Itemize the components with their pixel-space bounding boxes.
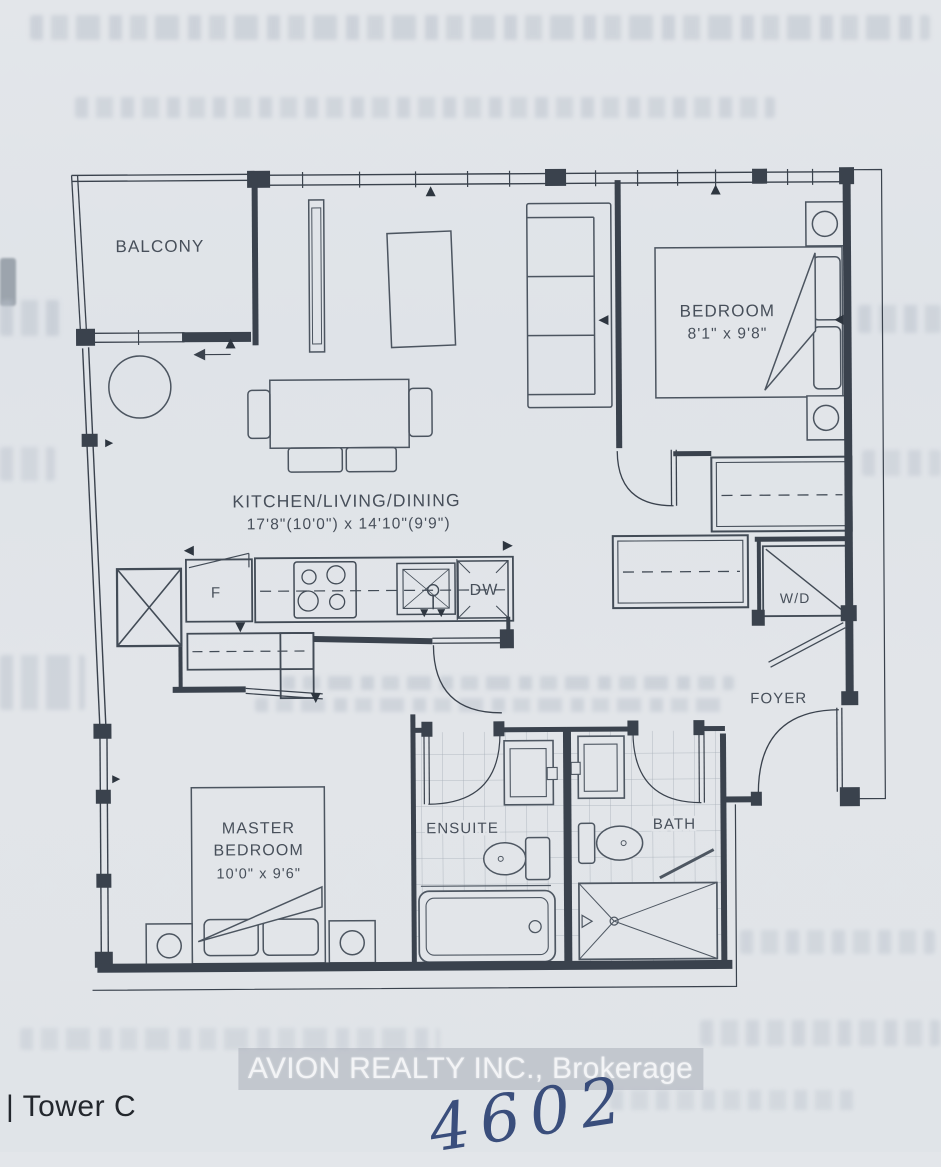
master-window-wall	[100, 738, 108, 958]
fridge-label: F	[211, 585, 221, 602]
left-wall-corner	[94, 724, 111, 738]
foyer-label: FOYER	[750, 690, 807, 707]
bedroom-door	[617, 450, 711, 507]
closets	[612, 457, 852, 668]
master-suite-entry	[313, 617, 514, 714]
sofa	[527, 203, 612, 408]
bedroom-bed	[655, 247, 843, 398]
master-bedroom-dimensions: 10'0" x 9'6"	[216, 866, 301, 883]
washer-dryer-label: W/D	[780, 590, 811, 606]
entry-door	[723, 692, 860, 807]
wd-closet-walls	[752, 539, 857, 626]
bedroom-closet	[711, 457, 851, 532]
tower-label: | Tower C	[6, 1090, 136, 1124]
floor-plan-drawing: BALCONY BEDROOM 8'1" x 9'8" KITCHEN/LIVI…	[0, 0, 941, 1155]
dishwasher-label: DW	[470, 582, 499, 599]
ensuite-bathtub	[419, 885, 555, 962]
balcony-door-wall	[76, 328, 250, 360]
master-bedroom-label-2: BEDROOM	[213, 842, 303, 860]
ensuite-vanity-sink	[504, 740, 557, 804]
foyer-closet	[613, 535, 748, 608]
master-bedroom-walls	[172, 646, 322, 700]
kitchen-sink	[397, 563, 455, 614]
bedroom-dimensions: 8'1" x 9'8"	[688, 325, 768, 342]
bath-right-wall	[723, 733, 724, 964]
bath-vanity-sink	[571, 736, 624, 798]
kitchen-living-dining-dimensions: 17'8"(10'0") x 14'10"(9'9")	[247, 515, 451, 533]
left-window-wall	[83, 347, 106, 728]
sliding-door-arrow	[195, 350, 205, 360]
ensuite-label: ENSUITE	[426, 820, 499, 837]
dining-table	[248, 379, 433, 472]
top-window-wall	[248, 168, 854, 189]
bottom-wall	[97, 964, 732, 968]
master-bedroom-label-1: MASTER	[222, 820, 295, 837]
coffee-table	[387, 231, 456, 348]
balcony-side-wall	[255, 172, 256, 345]
kitchen	[117, 552, 514, 699]
round-table	[109, 356, 171, 418]
brokerage-watermark: AVION REALTY INC., Brokerage	[238, 1048, 703, 1090]
bath-toilet	[579, 823, 643, 863]
balcony-label: BALCONY	[115, 237, 204, 257]
tv-console	[309, 200, 325, 352]
cooktop-stove	[294, 562, 356, 618]
washer-dryer-closet	[763, 546, 849, 668]
kitchen-living-dining-label: KITCHEN/LIVING/DINING	[232, 490, 460, 511]
bedroom-partition-wall	[618, 180, 620, 448]
bath-label: BATH	[653, 816, 696, 833]
left-wall-sill	[82, 434, 97, 446]
right-wall	[847, 175, 850, 701]
shaft-column	[117, 569, 181, 646]
bedroom-label: BEDROOM	[680, 301, 776, 321]
